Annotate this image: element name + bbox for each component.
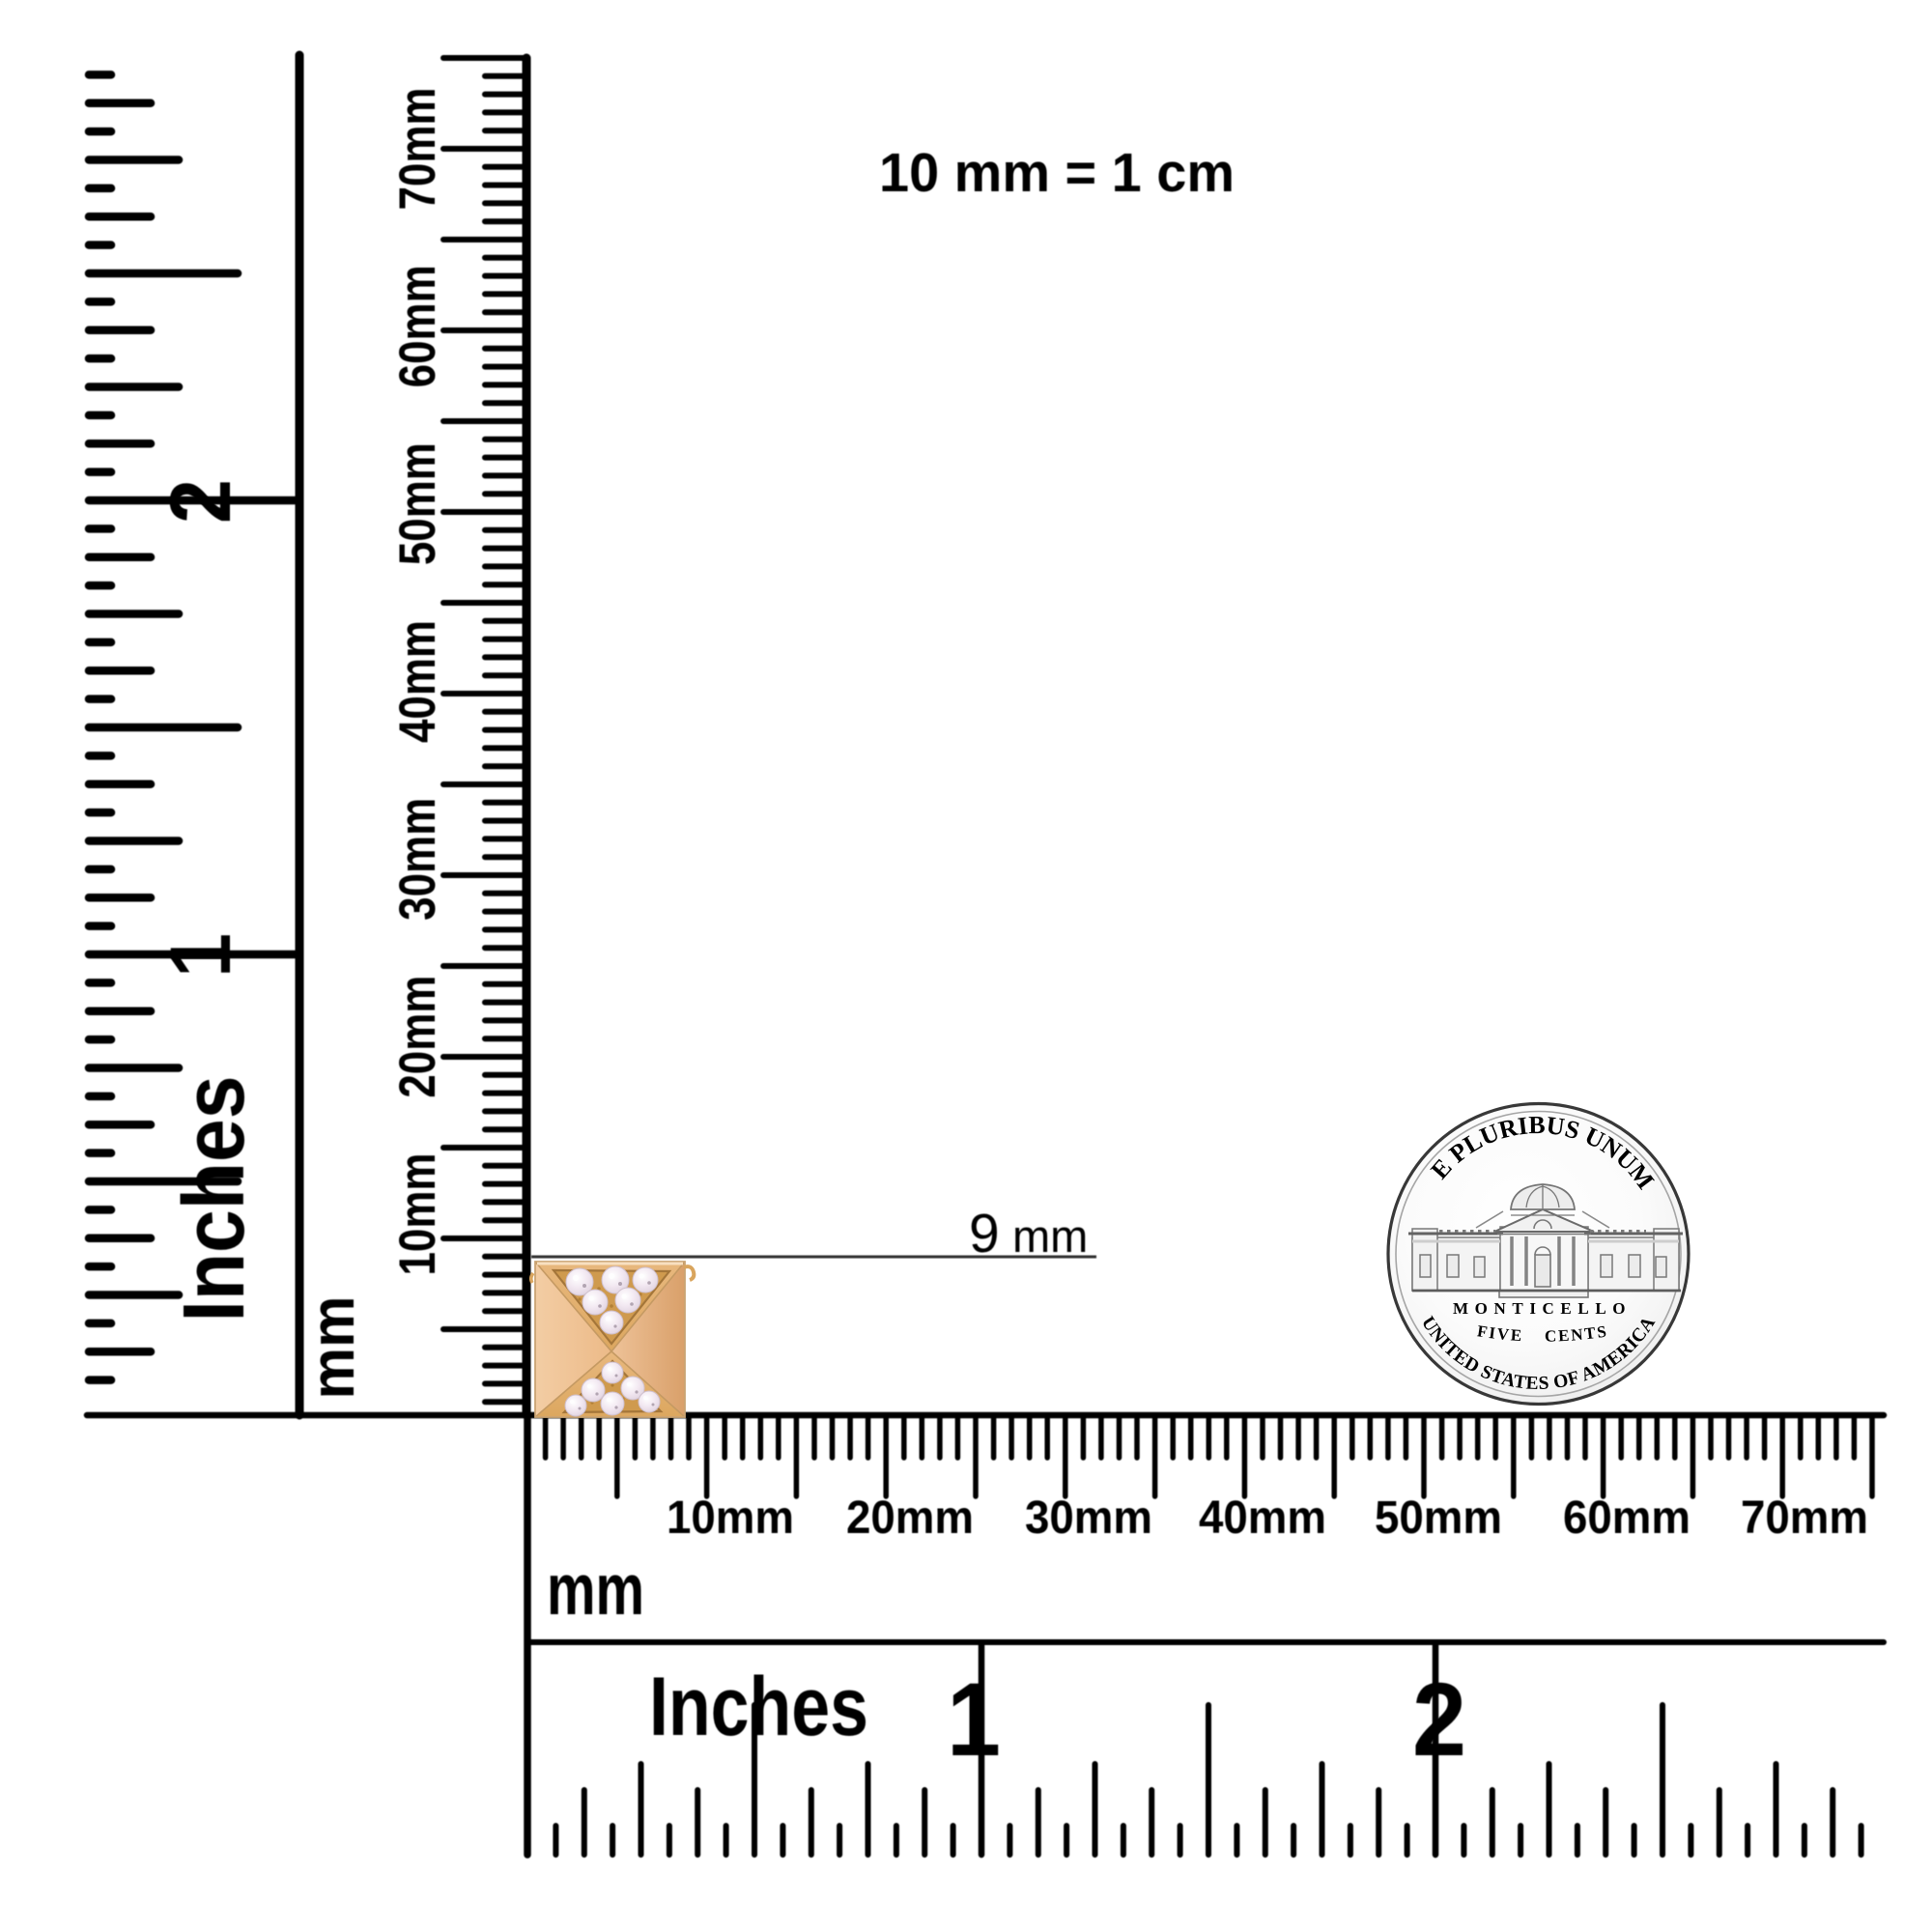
svg-text:Inches: Inches — [166, 1076, 263, 1322]
svg-text:10mm: 10mm — [389, 1153, 446, 1276]
svg-text:Inches: Inches — [649, 1661, 868, 1753]
svg-text:60mm: 60mm — [1563, 1492, 1690, 1544]
svg-text:1: 1 — [947, 1661, 1001, 1777]
svg-text:10 mm = 1 cm: 10 mm = 1 cm — [879, 142, 1235, 204]
svg-text:70mm: 70mm — [389, 88, 446, 211]
svg-text:70mm: 70mm — [1741, 1492, 1868, 1544]
svg-text:mm: mm — [298, 1296, 367, 1400]
svg-text:MONTICELLO: MONTICELLO — [1453, 1299, 1633, 1318]
svg-text:50mm: 50mm — [1375, 1492, 1502, 1544]
svg-text:50mm: 50mm — [389, 442, 446, 565]
svg-text:mm: mm — [1012, 1210, 1088, 1262]
svg-text:30mm: 30mm — [1025, 1492, 1152, 1544]
svg-text:2: 2 — [1412, 1661, 1466, 1777]
svg-text:40mm: 40mm — [1199, 1492, 1326, 1544]
svg-text:10mm: 10mm — [667, 1492, 794, 1544]
svg-text:2: 2 — [152, 479, 248, 524]
svg-text:1: 1 — [152, 933, 248, 978]
svg-text:20mm: 20mm — [846, 1492, 974, 1544]
svg-text:40mm: 40mm — [389, 620, 446, 743]
svg-text:30mm: 30mm — [389, 798, 446, 921]
svg-text:9: 9 — [969, 1203, 1000, 1264]
svg-text:mm: mm — [547, 1548, 644, 1630]
svg-text:20mm: 20mm — [389, 976, 446, 1098]
svg-text:60mm: 60mm — [389, 265, 446, 387]
